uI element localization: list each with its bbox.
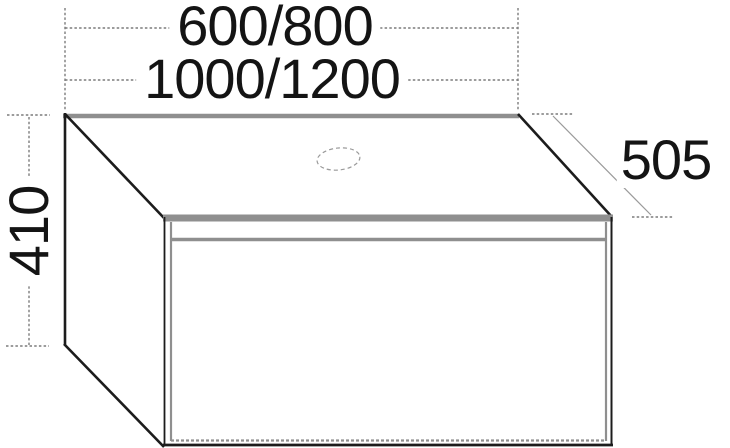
cabinet-left-bottom-edge — [64, 344, 164, 447]
dimension-label-width-line1: 600/800 — [169, 0, 380, 54]
dimension-label-height: 410 — [1, 176, 57, 286]
countertop-cutout-ellipse — [316, 146, 361, 172]
dimension-label-width-line2: 1000/1200 — [136, 51, 408, 107]
furniture-dimension-diagram: 600/800 1000/1200 410 505 — [0, 0, 730, 448]
countertop-right-edge — [518, 114, 612, 217]
cabinet-body — [63, 113, 613, 447]
dimension-label-depth: 505 — [617, 132, 715, 188]
countertop-left-edge — [65, 114, 164, 218]
